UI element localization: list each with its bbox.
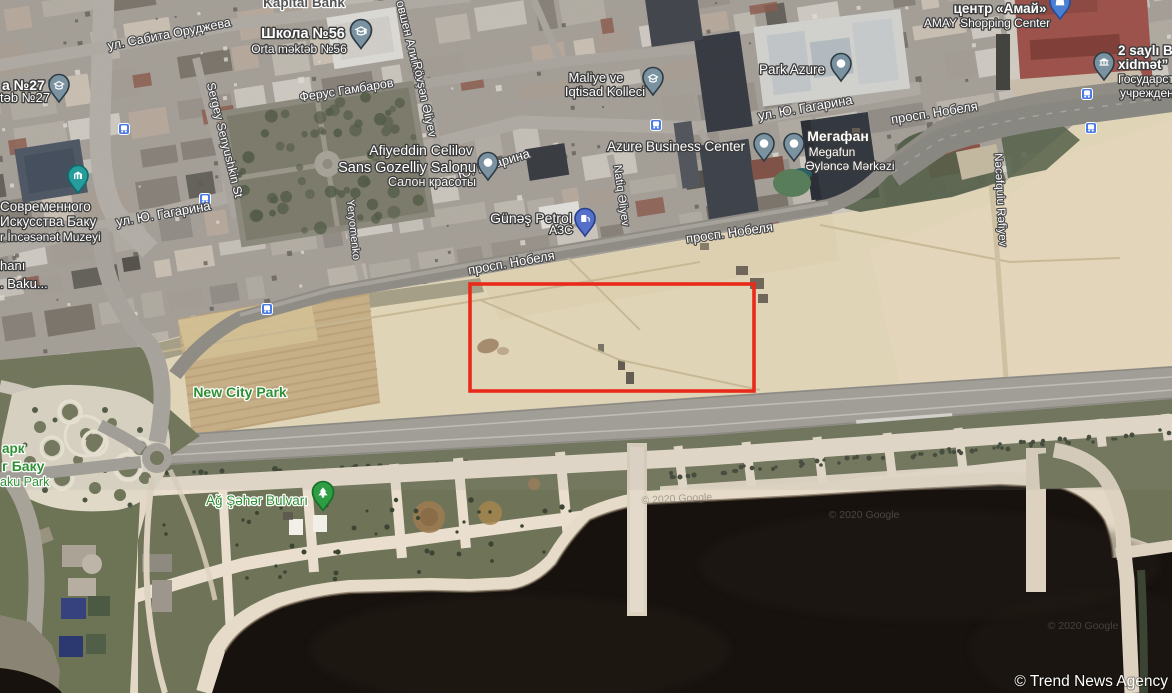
svg-text:Azure Business Center: Azure Business Center: [607, 139, 746, 154]
svg-text:Iqtisad Kolleci: Iqtisad Kolleci: [565, 84, 645, 99]
svg-text:Салон красоты: Салон красоты: [388, 175, 476, 189]
svg-text:Əyləncə Mərkəzi: Əyləncə Mərkəzi: [805, 159, 894, 173]
svg-text:təb №27: təb №27: [0, 90, 50, 105]
svg-text:Afiyeddin Celilov: Afiyeddin Celilov: [369, 142, 473, 158]
svg-text:© 2020 Google: © 2020 Google: [829, 509, 900, 521]
svg-text:2 saylı B: 2 saylı B: [1118, 43, 1172, 58]
svg-text:Sans Gozelliy Salonu: Sans Gozelliy Salonu: [338, 160, 476, 176]
svg-text:aku Park: aku Park: [0, 475, 50, 489]
svg-text:hanı: hanı: [0, 258, 25, 273]
svg-text:центр «Амай»: центр «Амай»: [954, 1, 1047, 16]
svg-text:Современного: Современного: [0, 199, 91, 214]
svg-text:арк: арк: [2, 441, 25, 456]
svg-text:Искусства Баку: Искусства Баку: [0, 214, 96, 229]
svg-text:AMAY Shopping Center: AMAY Shopping Center: [924, 16, 1050, 30]
svg-text:r İncəsənət Muzeyi: r İncəsənət Muzeyi: [0, 230, 101, 244]
svg-text:Park Azure: Park Azure: [759, 62, 825, 77]
svg-text:© Trend News Agency: © Trend News Agency: [1014, 673, 1168, 690]
svg-text:Школа №56: Школа №56: [261, 26, 345, 42]
svg-text:учрежден: учрежден: [1120, 86, 1172, 100]
svg-text:Kapital Bank: Kapital Bank: [263, 0, 345, 10]
svg-text:Ağ Şəhər Bulvarı: Ağ Şəhər Bulvarı: [206, 493, 308, 508]
svg-text:Государст: Государст: [1118, 72, 1172, 86]
svg-text:New City Park: New City Park: [193, 384, 287, 400]
svg-text:Orta məktəb №56: Orta məktəb №56: [251, 42, 347, 56]
svg-text:Megafun: Megafun: [809, 145, 856, 159]
svg-text:Мегафан: Мегафан: [807, 128, 869, 144]
svg-text:Maliye ve: Maliye ve: [569, 70, 624, 85]
svg-text:xidmət”: xidmət”: [1118, 57, 1168, 72]
svg-text:© 2020 Google: © 2020 Google: [1048, 620, 1119, 632]
svg-text:. Baku...: . Baku...: [0, 276, 48, 291]
svg-text:г Баку: г Баку: [2, 458, 45, 474]
svg-text:АЗС: АЗС: [549, 223, 573, 237]
